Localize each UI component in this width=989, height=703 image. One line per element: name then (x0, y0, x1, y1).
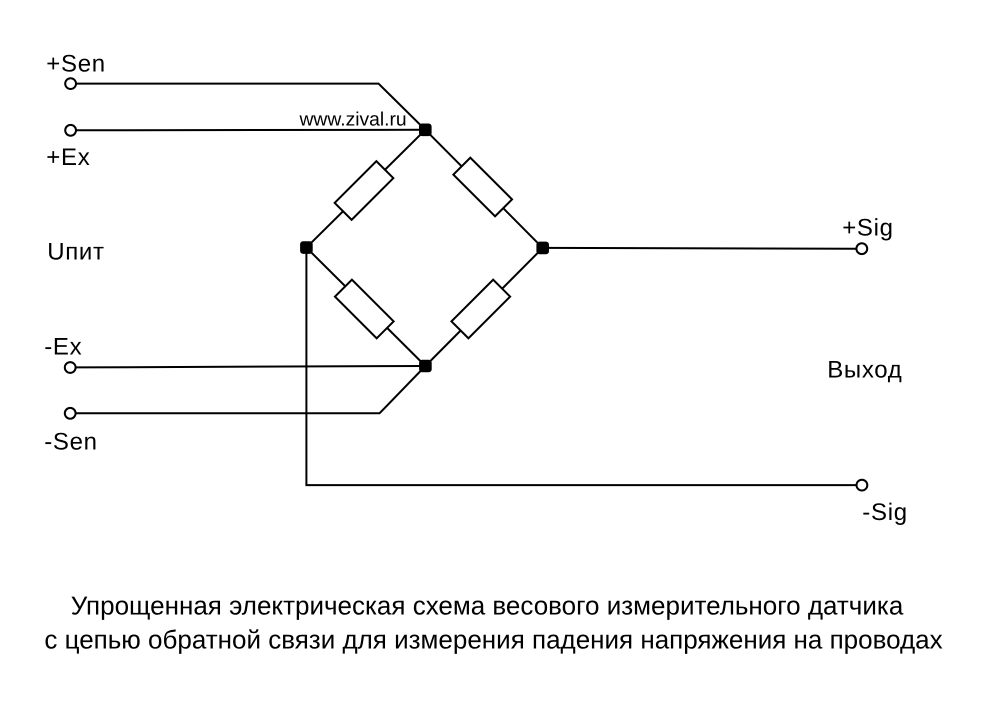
svg-text:Выход: Выход (827, 356, 902, 383)
svg-text:с цепью обратной связи для изм: с цепью обратной связи для измерения пад… (44, 624, 942, 654)
svg-text:+Sen: +Sen (46, 50, 106, 77)
svg-text:+Ex: +Ex (46, 144, 90, 171)
svg-text:-Sig: -Sig (862, 499, 907, 526)
svg-text:Uпит: Uпит (47, 239, 105, 266)
svg-text:Упрощенная электрическая схема: Упрощенная электрическая схема весового … (71, 590, 904, 620)
svg-text:+Sig: +Sig (842, 215, 894, 242)
svg-text:-Sen: -Sen (44, 429, 97, 456)
svg-text:-Ex: -Ex (44, 333, 82, 360)
svg-text:www.zival.ru: www.zival.ru (299, 110, 407, 131)
